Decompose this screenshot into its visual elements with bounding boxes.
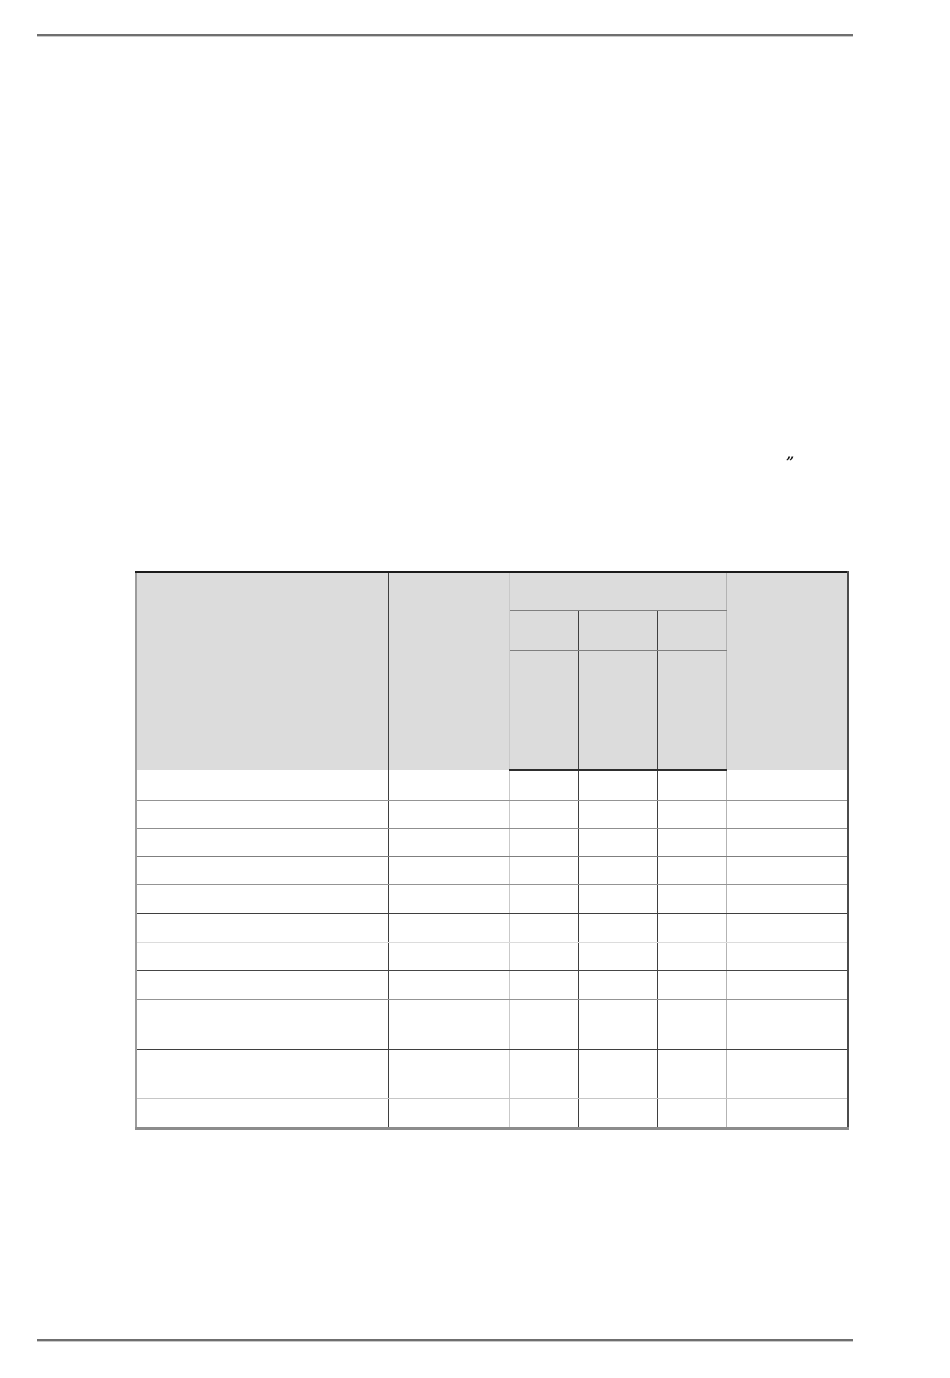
table-row xyxy=(136,1049,848,1098)
table-cell xyxy=(388,1049,509,1098)
header-row-group xyxy=(136,572,848,610)
table-cell xyxy=(726,1049,848,1098)
table-cell xyxy=(136,942,388,970)
header-cell-group xyxy=(509,572,726,610)
header-cell-sub1-lower xyxy=(509,650,578,770)
table-cell xyxy=(388,884,509,913)
top-horizontal-rule xyxy=(37,34,853,37)
table-row xyxy=(136,770,848,800)
table-cell xyxy=(509,770,578,800)
header-cell-sub2-lower xyxy=(578,650,657,770)
table-cell xyxy=(388,828,509,856)
table-cell xyxy=(136,770,388,800)
table-row xyxy=(136,999,848,1049)
blank-data-table xyxy=(135,571,849,1130)
table-cell xyxy=(509,999,578,1049)
table-cell xyxy=(578,828,657,856)
table-cell xyxy=(509,828,578,856)
table-cell xyxy=(509,970,578,999)
table-cell xyxy=(578,800,657,828)
table-cell xyxy=(578,942,657,970)
table-cell xyxy=(136,1098,388,1128)
table-cell xyxy=(726,913,848,942)
bottom-horizontal-rule xyxy=(37,1339,853,1342)
table-cell xyxy=(657,970,726,999)
table-cell xyxy=(388,999,509,1049)
table-cell xyxy=(388,913,509,942)
table-cell xyxy=(726,856,848,884)
table-cell xyxy=(578,970,657,999)
table-cell xyxy=(657,1098,726,1128)
table-cell xyxy=(657,828,726,856)
table-cell xyxy=(726,970,848,999)
header-cell-col6 xyxy=(726,572,848,770)
table-cell xyxy=(578,999,657,1049)
table-cell xyxy=(388,1098,509,1128)
table-cell xyxy=(509,1098,578,1128)
table-cell xyxy=(657,856,726,884)
table-cell xyxy=(578,1098,657,1128)
table-row xyxy=(136,1098,848,1128)
table-cell xyxy=(509,884,578,913)
table-body xyxy=(136,770,848,1128)
table-cell xyxy=(657,800,726,828)
table-cell xyxy=(388,770,509,800)
table-cell xyxy=(136,970,388,999)
closing-quote-mark: ” xyxy=(786,455,794,471)
table-cell xyxy=(578,1049,657,1098)
table-cell xyxy=(578,770,657,800)
table-row xyxy=(136,942,848,970)
table-cell xyxy=(657,1049,726,1098)
table-cell xyxy=(136,800,388,828)
header-cell-sub2 xyxy=(578,610,657,650)
table-cell xyxy=(726,942,848,970)
table-cell xyxy=(657,884,726,913)
table-cell xyxy=(509,800,578,828)
table-cell xyxy=(388,942,509,970)
table-row xyxy=(136,884,848,913)
table-cell xyxy=(726,884,848,913)
table-row xyxy=(136,856,848,884)
table-cell xyxy=(509,1049,578,1098)
table-header xyxy=(136,572,848,770)
header-cell-sub3 xyxy=(657,610,726,650)
table-cell xyxy=(509,942,578,970)
table-cell xyxy=(136,999,388,1049)
table-cell xyxy=(726,999,848,1049)
table-cell xyxy=(657,942,726,970)
table-cell xyxy=(136,856,388,884)
table-cell xyxy=(509,913,578,942)
table-cell xyxy=(136,913,388,942)
header-cell-col2 xyxy=(388,572,509,770)
table-cell xyxy=(726,1098,848,1128)
table-row xyxy=(136,913,848,942)
document-page: { "page": { "quote_mark": "”" }, "table"… xyxy=(0,0,950,1378)
table-cell xyxy=(726,828,848,856)
table-cell xyxy=(136,884,388,913)
table-cell xyxy=(136,828,388,856)
table-row xyxy=(136,828,848,856)
table-cell xyxy=(136,1049,388,1098)
table-cell xyxy=(388,800,509,828)
table-cell xyxy=(726,770,848,800)
table-cell xyxy=(657,999,726,1049)
table-row xyxy=(136,800,848,828)
table-cell xyxy=(578,856,657,884)
table-cell xyxy=(578,884,657,913)
table-cell xyxy=(509,856,578,884)
table-cell xyxy=(388,856,509,884)
table-cell xyxy=(578,913,657,942)
header-cell-sub1 xyxy=(509,610,578,650)
header-cell-col1 xyxy=(136,572,388,770)
table-row xyxy=(136,970,848,999)
table-cell xyxy=(726,800,848,828)
table-cell xyxy=(388,970,509,999)
header-cell-sub3-lower xyxy=(657,650,726,770)
table-cell xyxy=(657,770,726,800)
table-cell xyxy=(657,913,726,942)
